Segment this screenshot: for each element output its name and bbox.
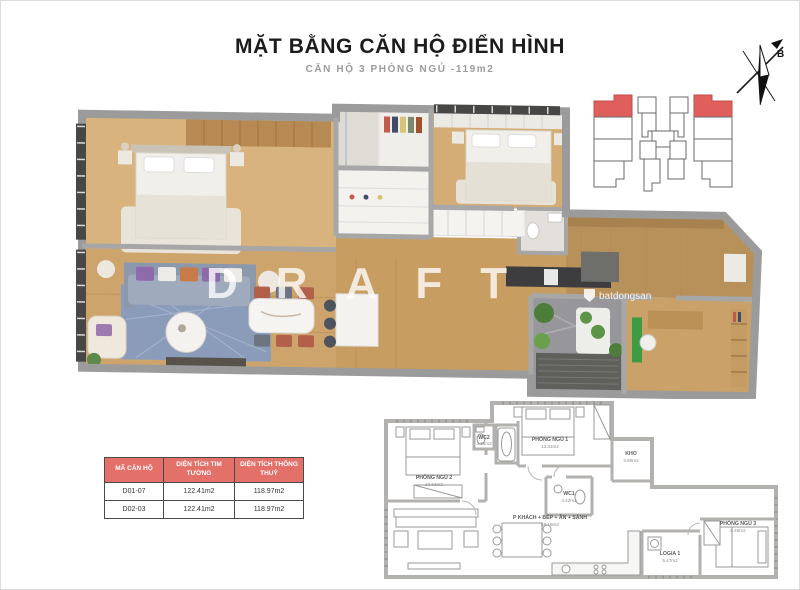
doormat bbox=[581, 252, 619, 283]
gross-area: 122.41m2 bbox=[164, 482, 235, 500]
page-subtitle: CĂN HỘ 3 PHÒNG NGỦ -119m2 bbox=[1, 64, 799, 75]
room-area-phong-ngu-3: 8.45m2 bbox=[730, 528, 746, 533]
room-area-kho: 3.60m2 bbox=[623, 458, 639, 463]
site-watermark-text: batdongsan bbox=[599, 291, 651, 302]
room-area-living: 58.19m2 bbox=[541, 522, 559, 527]
col-header-net-area: DIỆN TÍCH THÔNG THUỶ bbox=[235, 458, 304, 483]
unit-code: D01-07 bbox=[105, 482, 164, 500]
col-header-gross-area: DIỆN TÍCH TIM TƯỜNG bbox=[164, 458, 235, 483]
net-area: 118.97m2 bbox=[235, 482, 304, 500]
col-header-unit-code: MÃ CĂN HỘ bbox=[105, 458, 164, 483]
table-row: D02-03 122.41m2 118.97m2 bbox=[105, 500, 304, 518]
room-area-logia-1: 5.47m2 bbox=[662, 558, 678, 563]
room-area-phong-ngu-1: 13.31m2 bbox=[541, 444, 559, 449]
floorplan-page: MẶT BẰNG CĂN HỘ ĐIỂN HÌNH CĂN HỘ 3 PHÒNG… bbox=[0, 0, 800, 590]
bath-closet-furniture bbox=[338, 110, 429, 235]
unit-area-table: MÃ CĂN HỘ DIỆN TÍCH TIM TƯỜNG DIỆN TÍCH … bbox=[104, 457, 304, 519]
floorplan-3d: DRAFT batdongsan bbox=[36, 93, 766, 399]
page-title: MẶT BẰNG CĂN HỘ ĐIỂN HÌNH bbox=[1, 35, 799, 59]
table-header-row: MÃ CĂN HỘ DIỆN TÍCH TIM TƯỜNG DIỆN TÍCH … bbox=[105, 458, 304, 483]
room-label-logia-1: LOGIA 1 bbox=[660, 551, 681, 557]
room-label-living: P KHÁCH + BẾP + ĂN + SẢNH bbox=[513, 514, 587, 521]
room-area-phong-ngu-2: 10.93m2 bbox=[425, 482, 443, 487]
gross-area: 122.41m2 bbox=[164, 500, 235, 518]
wc-furniture bbox=[519, 209, 566, 254]
room-area-wc1: 4.42m2 bbox=[561, 498, 577, 503]
room-label-wc1: WC1 bbox=[563, 491, 575, 497]
room-label-phong-ngu-3: PHÒNG NGỦ 3 bbox=[720, 519, 756, 527]
draft-watermark: DRAFT bbox=[206, 259, 545, 308]
room-label-kho: KHO bbox=[625, 451, 637, 457]
net-area: 118.97m2 bbox=[235, 500, 304, 518]
page-header: MẶT BẰNG CĂN HỘ ĐIỂN HÌNH CĂN HỘ 3 PHÒNG… bbox=[1, 35, 799, 75]
floorplan-2d: PHÒNG NGỦ 2 10.93m2 WC2 3.35m2 PHÒNG NGỦ… bbox=[384, 397, 782, 587]
unit-code: D02-03 bbox=[105, 500, 164, 518]
room-area-wc2: 3.35m2 bbox=[476, 441, 492, 446]
room-label-phong-ngu-2: PHÒNG NGỦ 2 bbox=[416, 473, 452, 481]
compass-north-label: B bbox=[777, 49, 784, 60]
room-label-phong-ngu-1: PHÒNG NGỦ 1 bbox=[532, 435, 568, 443]
table-row: D01-07 122.41m2 118.97m2 bbox=[105, 482, 304, 500]
